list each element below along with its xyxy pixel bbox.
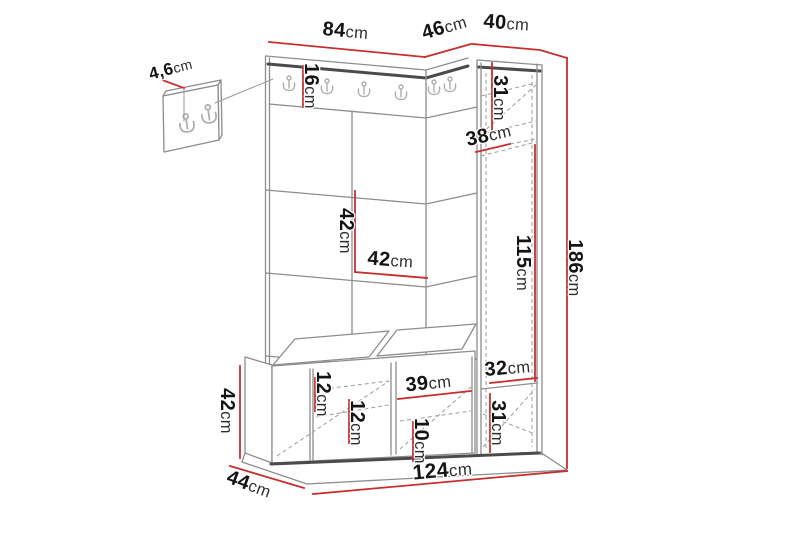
bench-left-side xyxy=(245,357,272,463)
dim-label-rail-height: 16cm xyxy=(300,63,322,109)
dim-label-total-height: 186cm xyxy=(564,239,586,296)
dim-label-bench-bottom-gap: 10cm xyxy=(410,418,432,464)
dim-label-cabinet-lower-drawer: 31cm xyxy=(487,400,509,446)
panel-front-face xyxy=(163,85,219,152)
dim-label-bench-top-inset: 12cm xyxy=(312,371,334,417)
dim-label-tile-height: 42cm xyxy=(335,208,357,254)
dim-label-cabinet-top-section: 31cm xyxy=(489,75,511,121)
dim-label-bench-height: 42cm xyxy=(216,388,238,434)
dim-label-bench-shelf-gap: 12cm xyxy=(346,400,368,446)
hallway-furniture-dimension-diagram: 4,6cm 84cm 46cm 40cm 16cm 31cm 38cm 42cm… xyxy=(0,0,800,533)
dim-label-cabinet-middle-height: 115cm xyxy=(512,235,534,291)
diagram-canvas: 4,6cm 84cm 46cm 40cm 16cm 31cm 38cm 42cm… xyxy=(0,0,800,533)
bench-front-face xyxy=(272,351,475,463)
